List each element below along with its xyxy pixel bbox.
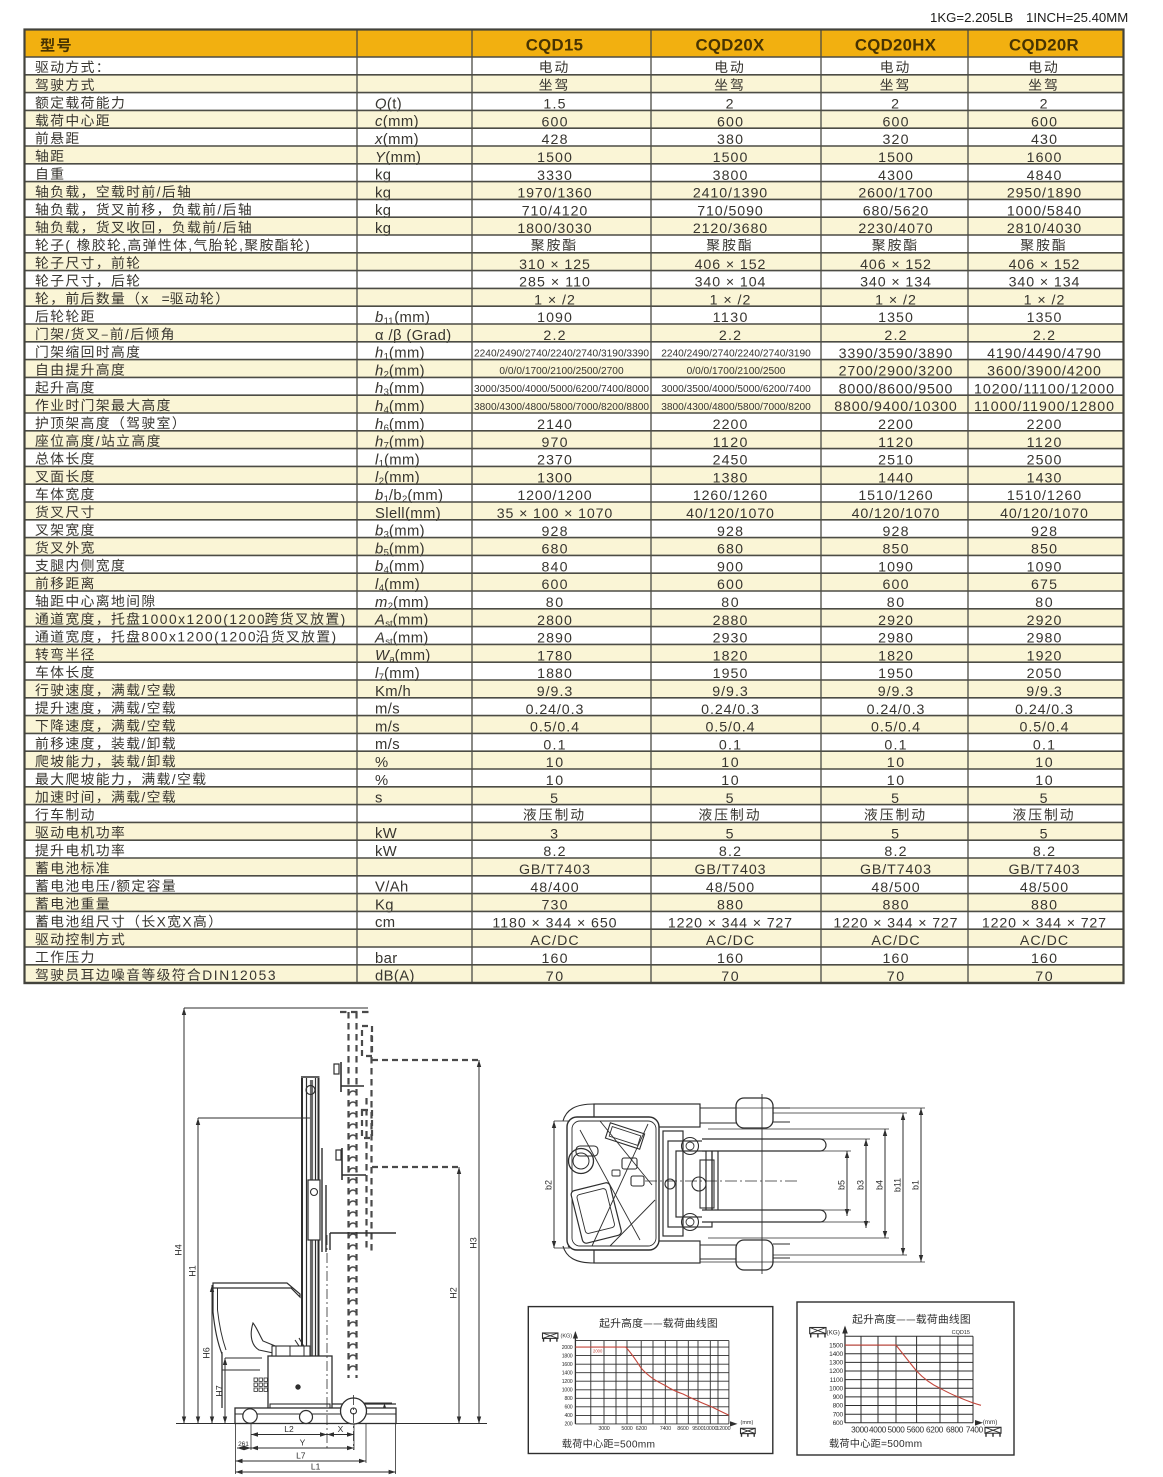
svg-text:6200: 6200 <box>926 1426 944 1435</box>
svg-text:L1: L1 <box>311 1462 321 1472</box>
svg-text:b4: b4 <box>875 1180 885 1190</box>
svg-text:400: 400 <box>564 1413 572 1419</box>
svg-text:900: 900 <box>833 1394 844 1401</box>
svg-text:1INCH=25.40MM: 1INCH=25.40MM <box>1026 10 1128 25</box>
svg-text:): ) <box>341 612 346 627</box>
svg-text:=500mm: =500mm <box>881 1439 922 1450</box>
svg-text:(mm): (mm) <box>741 1420 754 1426</box>
svg-text:H4: H4 <box>174 1244 184 1256</box>
svg-text:H2: H2 <box>449 1287 459 1299</box>
svg-text:X: X <box>182 914 191 929</box>
svg-text:6200: 6200 <box>636 1426 647 1432</box>
svg-text:): ) <box>305 238 310 253</box>
svg-text:2240/2490/2740/2240/2740/3190/: 2240/2490/2740/2240/2740/3190/3390 <box>474 348 649 359</box>
svg-text:700: 700 <box>833 1411 844 1418</box>
svg-text:1200: 1200 <box>829 1368 843 1375</box>
svg-text:/: / <box>141 701 145 716</box>
svg-text:CQD20HX: CQD20HX <box>855 35 937 54</box>
svg-text:1600: 1600 <box>562 1362 573 1368</box>
svg-text:7400: 7400 <box>966 1426 984 1435</box>
svg-text:3000/3500/4000/5000/6200/7400: 3000/3500/4000/5000/6200/7400 <box>661 384 811 395</box>
svg-text:1000: 1000 <box>562 1388 573 1394</box>
svg-text:=500mm: =500mm <box>614 1439 655 1450</box>
svg-text:1000: 1000 <box>829 1386 843 1393</box>
svg-text:800: 800 <box>564 1396 572 1402</box>
svg-text:9500: 9500 <box>692 1426 703 1432</box>
svg-text:2000: 2000 <box>562 1345 573 1351</box>
svg-text:/: / <box>172 772 176 787</box>
svg-text:7400: 7400 <box>660 1426 671 1432</box>
svg-text:/: / <box>141 683 145 698</box>
svg-text:(KG): (KG) <box>827 1330 840 1337</box>
svg-text:/: / <box>157 185 161 200</box>
svg-text:/: / <box>217 220 221 235</box>
svg-text:1100: 1100 <box>830 1377 844 1384</box>
svg-text:b5: b5 <box>837 1180 847 1190</box>
svg-text:4000: 4000 <box>869 1426 887 1435</box>
svg-text:2000: 2000 <box>593 1349 603 1354</box>
svg-text:3800/4300/4800/5800/7000/8200: 3800/4300/4800/5800/7000/8200 <box>661 402 811 413</box>
svg-text:1800: 1800 <box>562 1353 573 1359</box>
svg-text:800: 800 <box>833 1403 844 1410</box>
svg-text:CQD15: CQD15 <box>526 35 583 54</box>
svg-text:/: / <box>141 736 145 751</box>
svg-text:(mm): (mm) <box>983 1419 998 1426</box>
svg-text:/: / <box>125 327 129 342</box>
svg-text:1500: 1500 <box>829 1342 843 1349</box>
svg-text:200: 200 <box>564 1422 572 1428</box>
svg-text:5000: 5000 <box>621 1426 632 1432</box>
svg-text:/: / <box>217 202 221 217</box>
svg-text:/: / <box>141 754 145 769</box>
svg-text:0/0/0/1700/2100/2500: 0/0/0/1700/2100/2500 <box>687 366 786 377</box>
svg-text:1400: 1400 <box>829 1351 843 1358</box>
svg-text:11: 11 <box>384 316 394 327</box>
svg-text:3800/4300/4800/5800/7000/8200/: 3800/4300/4800/5800/7000/8200/8800 <box>474 402 649 413</box>
svg-text:8600: 8600 <box>677 1426 688 1432</box>
svg-text:/: / <box>65 327 69 342</box>
svg-text:L7: L7 <box>296 1451 306 1461</box>
svg-text:0/0/0/1700/2100/2500/2700: 0/0/0/1700/2100/2500/2700 <box>499 366 624 377</box>
svg-text:261: 261 <box>238 1441 249 1448</box>
svg-text:600: 600 <box>564 1405 572 1411</box>
svg-text:/: / <box>141 719 145 734</box>
svg-text:/: / <box>141 790 145 805</box>
svg-text:10000: 10000 <box>703 1426 717 1432</box>
svg-text:1200: 1200 <box>562 1379 573 1385</box>
svg-text:H7: H7 <box>215 1385 225 1397</box>
svg-text:(KG): (KG) <box>561 1333 573 1339</box>
svg-text:Y: Y <box>300 1438 306 1448</box>
svg-text:b2: b2 <box>544 1180 554 1190</box>
svg-text:(: ( <box>65 238 70 253</box>
svg-text:1400: 1400 <box>562 1371 573 1377</box>
svg-text:b11: b11 <box>893 1178 903 1192</box>
svg-text:CQD20X: CQD20X <box>696 35 765 54</box>
svg-text:X: X <box>157 914 166 929</box>
svg-text:b1: b1 <box>911 1180 921 1190</box>
svg-text:2240/2490/2740/2240/2740/3190: 2240/2490/2740/2240/2740/3190 <box>661 348 811 359</box>
svg-text:x =: x = <box>141 291 169 306</box>
svg-text:3000: 3000 <box>598 1426 609 1432</box>
svg-text:1300: 1300 <box>829 1360 843 1367</box>
svg-text:,: , <box>188 238 192 253</box>
svg-text:CQD15: CQD15 <box>952 1330 970 1336</box>
svg-text:b3: b3 <box>856 1180 866 1190</box>
svg-text:6800: 6800 <box>946 1426 964 1435</box>
svg-text:5000: 5000 <box>887 1426 905 1435</box>
svg-text:,: , <box>239 238 243 253</box>
svg-text:H3: H3 <box>469 1237 479 1249</box>
svg-text:CQD20R: CQD20R <box>1009 35 1079 54</box>
svg-text:/: / <box>96 434 100 449</box>
svg-text:X: X <box>338 1424 344 1434</box>
svg-text:,: , <box>122 238 126 253</box>
svg-text:3000: 3000 <box>851 1426 869 1435</box>
svg-text:H6: H6 <box>202 1347 212 1359</box>
svg-text:): ) <box>332 630 337 645</box>
svg-text:3000/3500/4000/5000/6200/7400/: 3000/3500/4000/5000/6200/7400/8000 <box>474 384 649 395</box>
svg-text:/: / <box>111 879 115 894</box>
svg-text:L2: L2 <box>284 1424 294 1434</box>
svg-text:1KG=2.205LB: 1KG=2.205LB <box>930 10 1013 25</box>
svg-text:H1: H1 <box>188 1265 198 1277</box>
svg-text:600: 600 <box>833 1420 844 1427</box>
svg-text:5600: 5600 <box>907 1426 925 1435</box>
svg-text:12000: 12000 <box>716 1426 730 1432</box>
